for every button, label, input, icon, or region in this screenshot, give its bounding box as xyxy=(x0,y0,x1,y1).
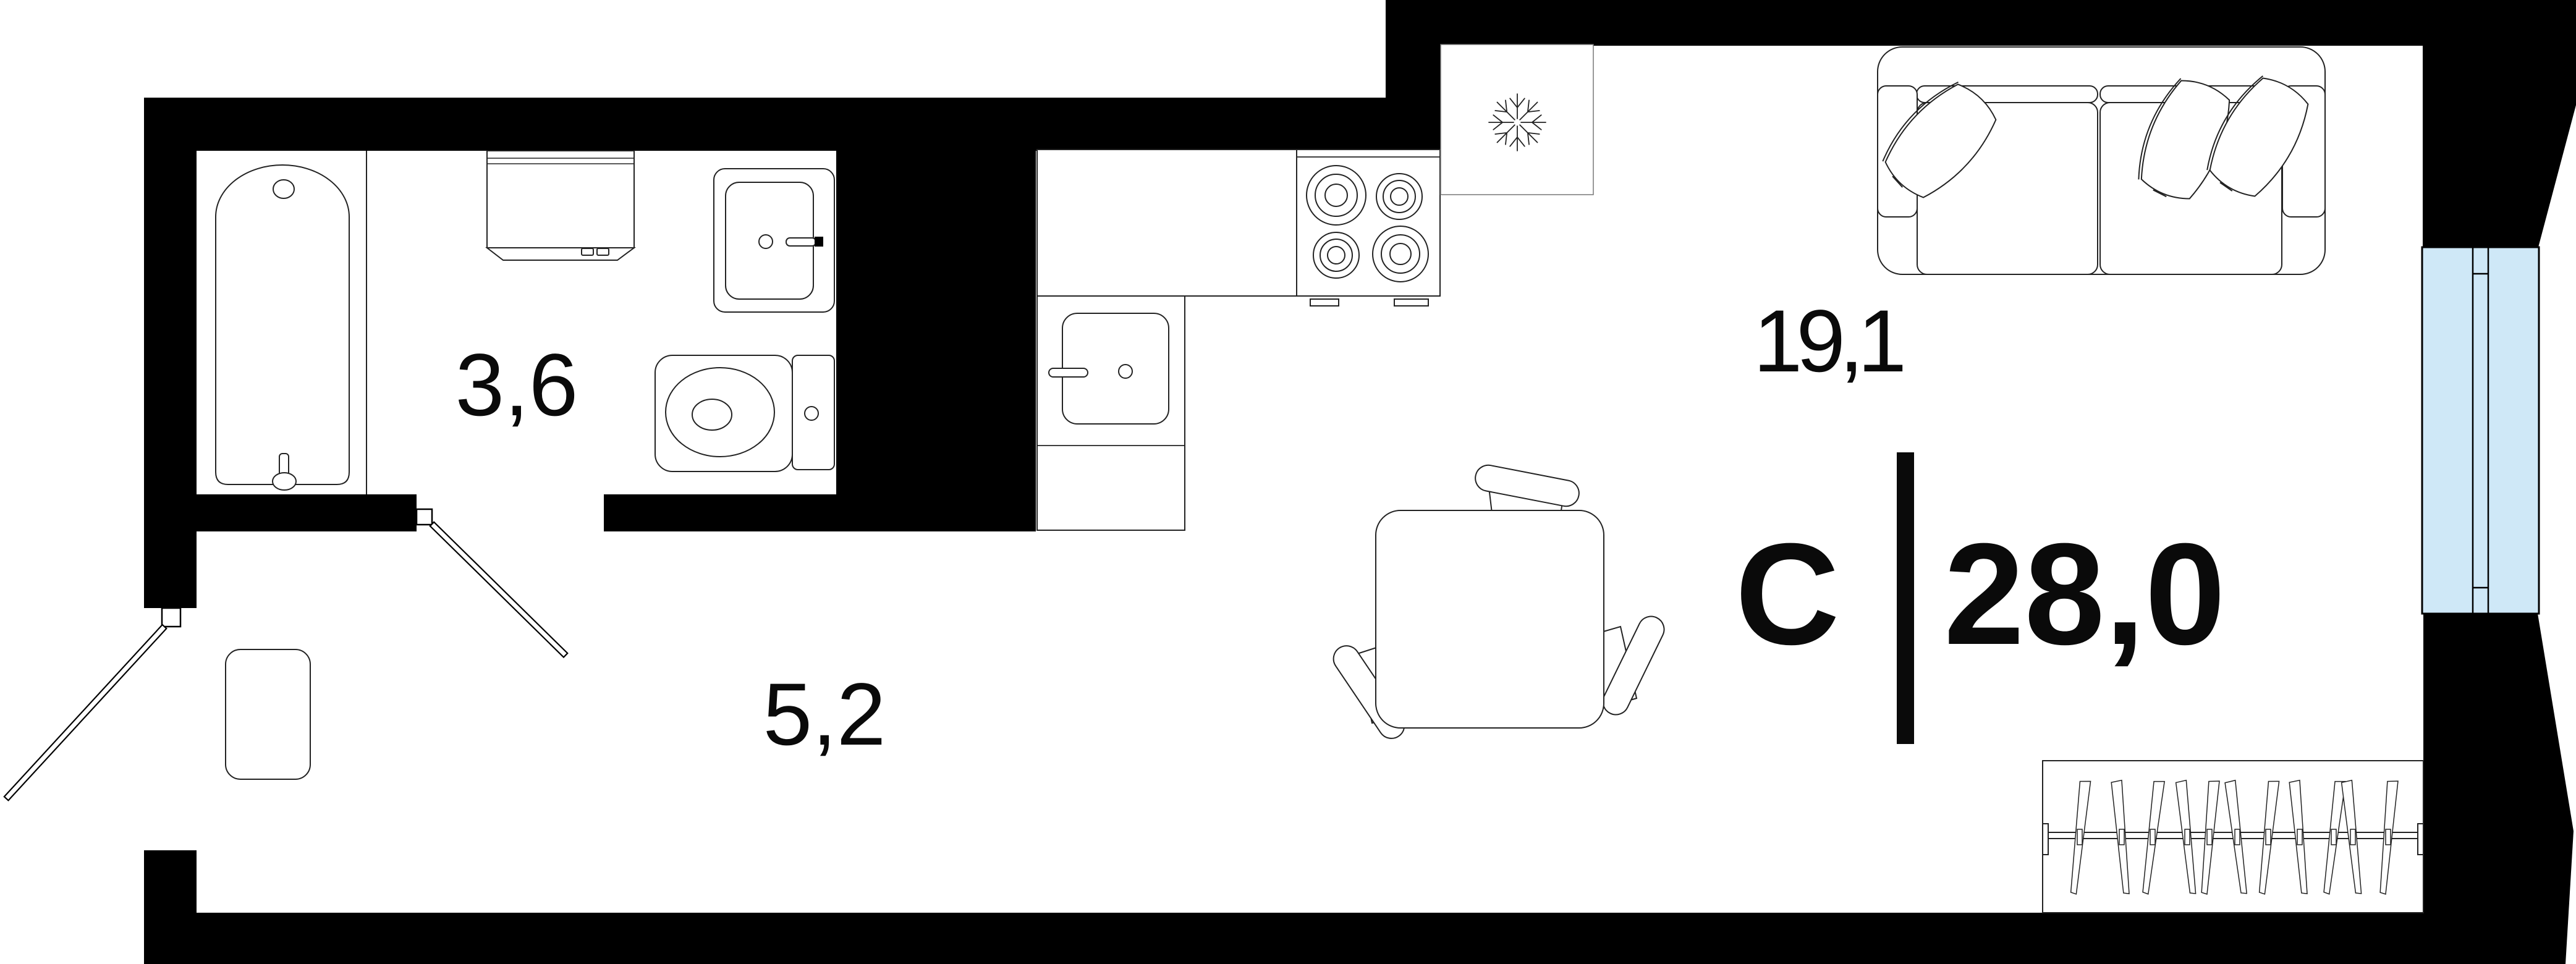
svg-text:28,0: 28,0 xyxy=(1944,513,2225,675)
svg-text:С: С xyxy=(1735,513,1840,675)
svg-text:3,6: 3,6 xyxy=(455,336,578,434)
svg-text:5,2: 5,2 xyxy=(763,666,886,764)
svg-text:19,1: 19,1 xyxy=(1753,292,1903,391)
